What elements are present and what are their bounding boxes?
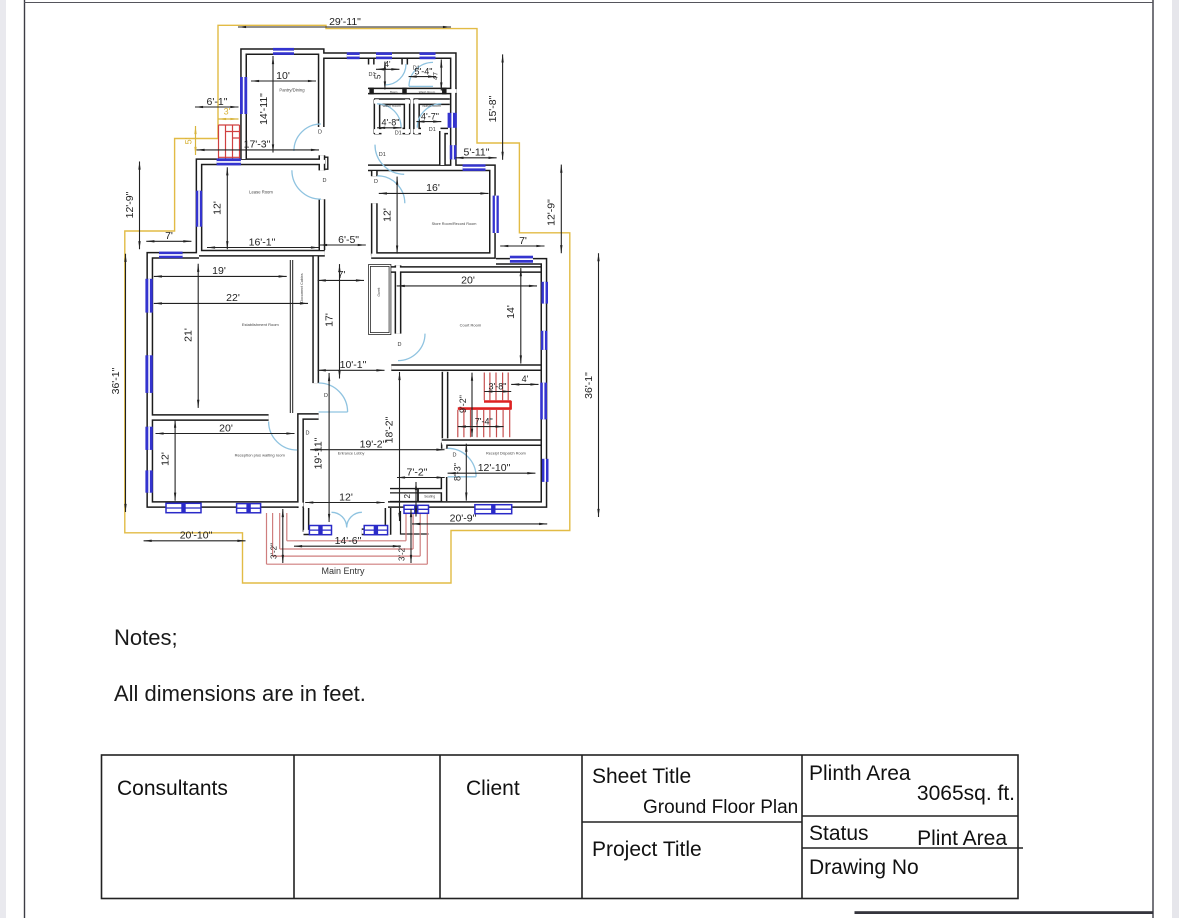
svg-text:D1: D1 bbox=[379, 152, 386, 158]
svg-text:4'-8": 4'-8" bbox=[382, 118, 400, 128]
svg-text:10': 10' bbox=[276, 70, 290, 82]
svg-text:7': 7' bbox=[165, 230, 173, 242]
svg-text:Basin: Basin bbox=[390, 90, 398, 94]
svg-text:Wash Room: Wash Room bbox=[382, 104, 401, 108]
svg-text:17': 17' bbox=[324, 313, 336, 327]
svg-text:19'-2": 19'-2" bbox=[360, 439, 387, 451]
svg-text:14'-11": 14'-11" bbox=[258, 93, 270, 125]
svg-text:4': 4' bbox=[522, 374, 529, 384]
svg-text:Drawing No: Drawing No bbox=[809, 856, 919, 879]
svg-text:16': 16' bbox=[426, 182, 440, 194]
svg-text:Plinth Area: Plinth Area bbox=[809, 762, 911, 785]
svg-text:16'-1": 16'-1" bbox=[249, 236, 276, 248]
svg-text:12': 12' bbox=[212, 201, 224, 215]
svg-text:7'-4": 7'-4" bbox=[475, 416, 493, 426]
svg-text:6'-5": 6'-5" bbox=[338, 234, 359, 246]
svg-text:D: D bbox=[306, 431, 310, 437]
svg-text:Project Title: Project Title bbox=[592, 838, 702, 861]
svg-text:D: D bbox=[453, 453, 457, 459]
svg-text:17'-3": 17'-3" bbox=[244, 139, 271, 151]
svg-text:20': 20' bbox=[461, 275, 475, 287]
svg-text:D: D bbox=[323, 178, 327, 184]
svg-text:Court Room: Court Room bbox=[460, 323, 482, 328]
svg-text:2': 2' bbox=[403, 492, 412, 498]
svg-text:3'-2": 3'-2" bbox=[398, 545, 407, 561]
svg-text:20'-10": 20'-10" bbox=[180, 530, 213, 542]
svg-text:D1: D1 bbox=[413, 66, 420, 72]
svg-text:Store Room/Record Room: Store Room/Record Room bbox=[432, 222, 477, 226]
svg-text:Entrance Lobby: Entrance Lobby bbox=[338, 452, 365, 456]
svg-text:3'-2": 3'-2" bbox=[270, 543, 279, 559]
svg-text:22': 22' bbox=[226, 292, 240, 304]
svg-text:4'-7": 4'-7" bbox=[421, 111, 439, 121]
svg-text:9'-2": 9'-2" bbox=[458, 395, 468, 413]
svg-text:3065sq. ft.: 3065sq. ft. bbox=[917, 782, 1015, 805]
svg-text:Receipt Dispatch Room: Receipt Dispatch Room bbox=[486, 451, 526, 455]
svg-text:29'-11": 29'-11" bbox=[329, 16, 361, 28]
svg-text:Ground Floor Plan: Ground Floor Plan bbox=[643, 797, 798, 818]
svg-text:12': 12' bbox=[382, 208, 394, 222]
svg-text:5': 5' bbox=[184, 137, 194, 144]
svg-text:Garett: Garett bbox=[377, 287, 381, 296]
svg-text:Notes;: Notes; bbox=[114, 625, 178, 650]
svg-text:15'-8": 15'-8" bbox=[487, 95, 499, 122]
svg-text:8'-3": 8'-3" bbox=[453, 463, 463, 481]
svg-text:4': 4' bbox=[385, 60, 391, 69]
svg-text:20'-9": 20'-9" bbox=[450, 513, 477, 525]
svg-text:12'-10": 12'-10" bbox=[478, 462, 511, 474]
svg-text:Establishment Room: Establishment Room bbox=[242, 322, 280, 327]
svg-text:Plint Area: Plint Area bbox=[917, 827, 1007, 850]
svg-text:D: D bbox=[398, 342, 402, 348]
svg-text:Sheet Title: Sheet Title bbox=[592, 765, 691, 788]
svg-text:D: D bbox=[374, 179, 378, 185]
svg-text:20': 20' bbox=[219, 422, 233, 434]
svg-text:36'-1": 36'-1" bbox=[583, 372, 595, 399]
svg-text:D1: D1 bbox=[395, 131, 402, 137]
svg-text:D1: D1 bbox=[369, 72, 376, 78]
svg-text:Client: Client bbox=[466, 777, 520, 800]
svg-text:Status: Status bbox=[809, 822, 869, 845]
svg-text:36'-1": 36'-1" bbox=[110, 367, 122, 394]
svg-text:Pantry/Dining: Pantry/Dining bbox=[279, 88, 305, 93]
svg-text:Document Cabins: Document Cabins bbox=[300, 273, 304, 302]
svg-text:Wash Room: Wash Room bbox=[419, 90, 436, 94]
svg-text:19': 19' bbox=[212, 265, 226, 277]
svg-text:12': 12' bbox=[339, 491, 353, 503]
svg-text:7': 7' bbox=[519, 235, 527, 247]
svg-text:D: D bbox=[324, 393, 328, 399]
svg-text:D: D bbox=[318, 130, 322, 136]
svg-text:D1: D1 bbox=[429, 127, 436, 133]
svg-text:Main Entry: Main Entry bbox=[321, 566, 365, 576]
svg-text:12'-9": 12'-9" bbox=[124, 191, 136, 218]
svg-text:Seating: Seating bbox=[424, 494, 435, 498]
svg-text:5'-11": 5'-11" bbox=[464, 147, 490, 159]
svg-text:14': 14' bbox=[505, 305, 517, 319]
svg-text:7'-2": 7'-2" bbox=[407, 466, 428, 478]
svg-text:19'-11": 19'-11" bbox=[313, 437, 325, 469]
svg-text:Consultants: Consultants bbox=[117, 777, 228, 800]
svg-text:7': 7' bbox=[338, 269, 346, 281]
svg-text:14'-6": 14'-6" bbox=[335, 535, 362, 547]
svg-text:Wash Room: Wash Room bbox=[422, 104, 441, 108]
svg-text:3'-8": 3'-8" bbox=[489, 381, 507, 391]
svg-text:12'-9": 12'-9" bbox=[546, 199, 558, 226]
svg-text:4'7: 4'7 bbox=[434, 71, 440, 79]
svg-text:Reception plus waiting room: Reception plus waiting room bbox=[235, 453, 286, 458]
svg-text:All dimensions are in feet.: All dimensions are in feet. bbox=[114, 681, 366, 706]
svg-text:10'-1": 10'-1" bbox=[340, 359, 367, 371]
svg-text:3': 3' bbox=[224, 107, 231, 117]
svg-text:21': 21' bbox=[183, 328, 195, 342]
svg-text:12': 12' bbox=[160, 452, 172, 466]
svg-text:Lease Room: Lease Room bbox=[249, 190, 273, 195]
